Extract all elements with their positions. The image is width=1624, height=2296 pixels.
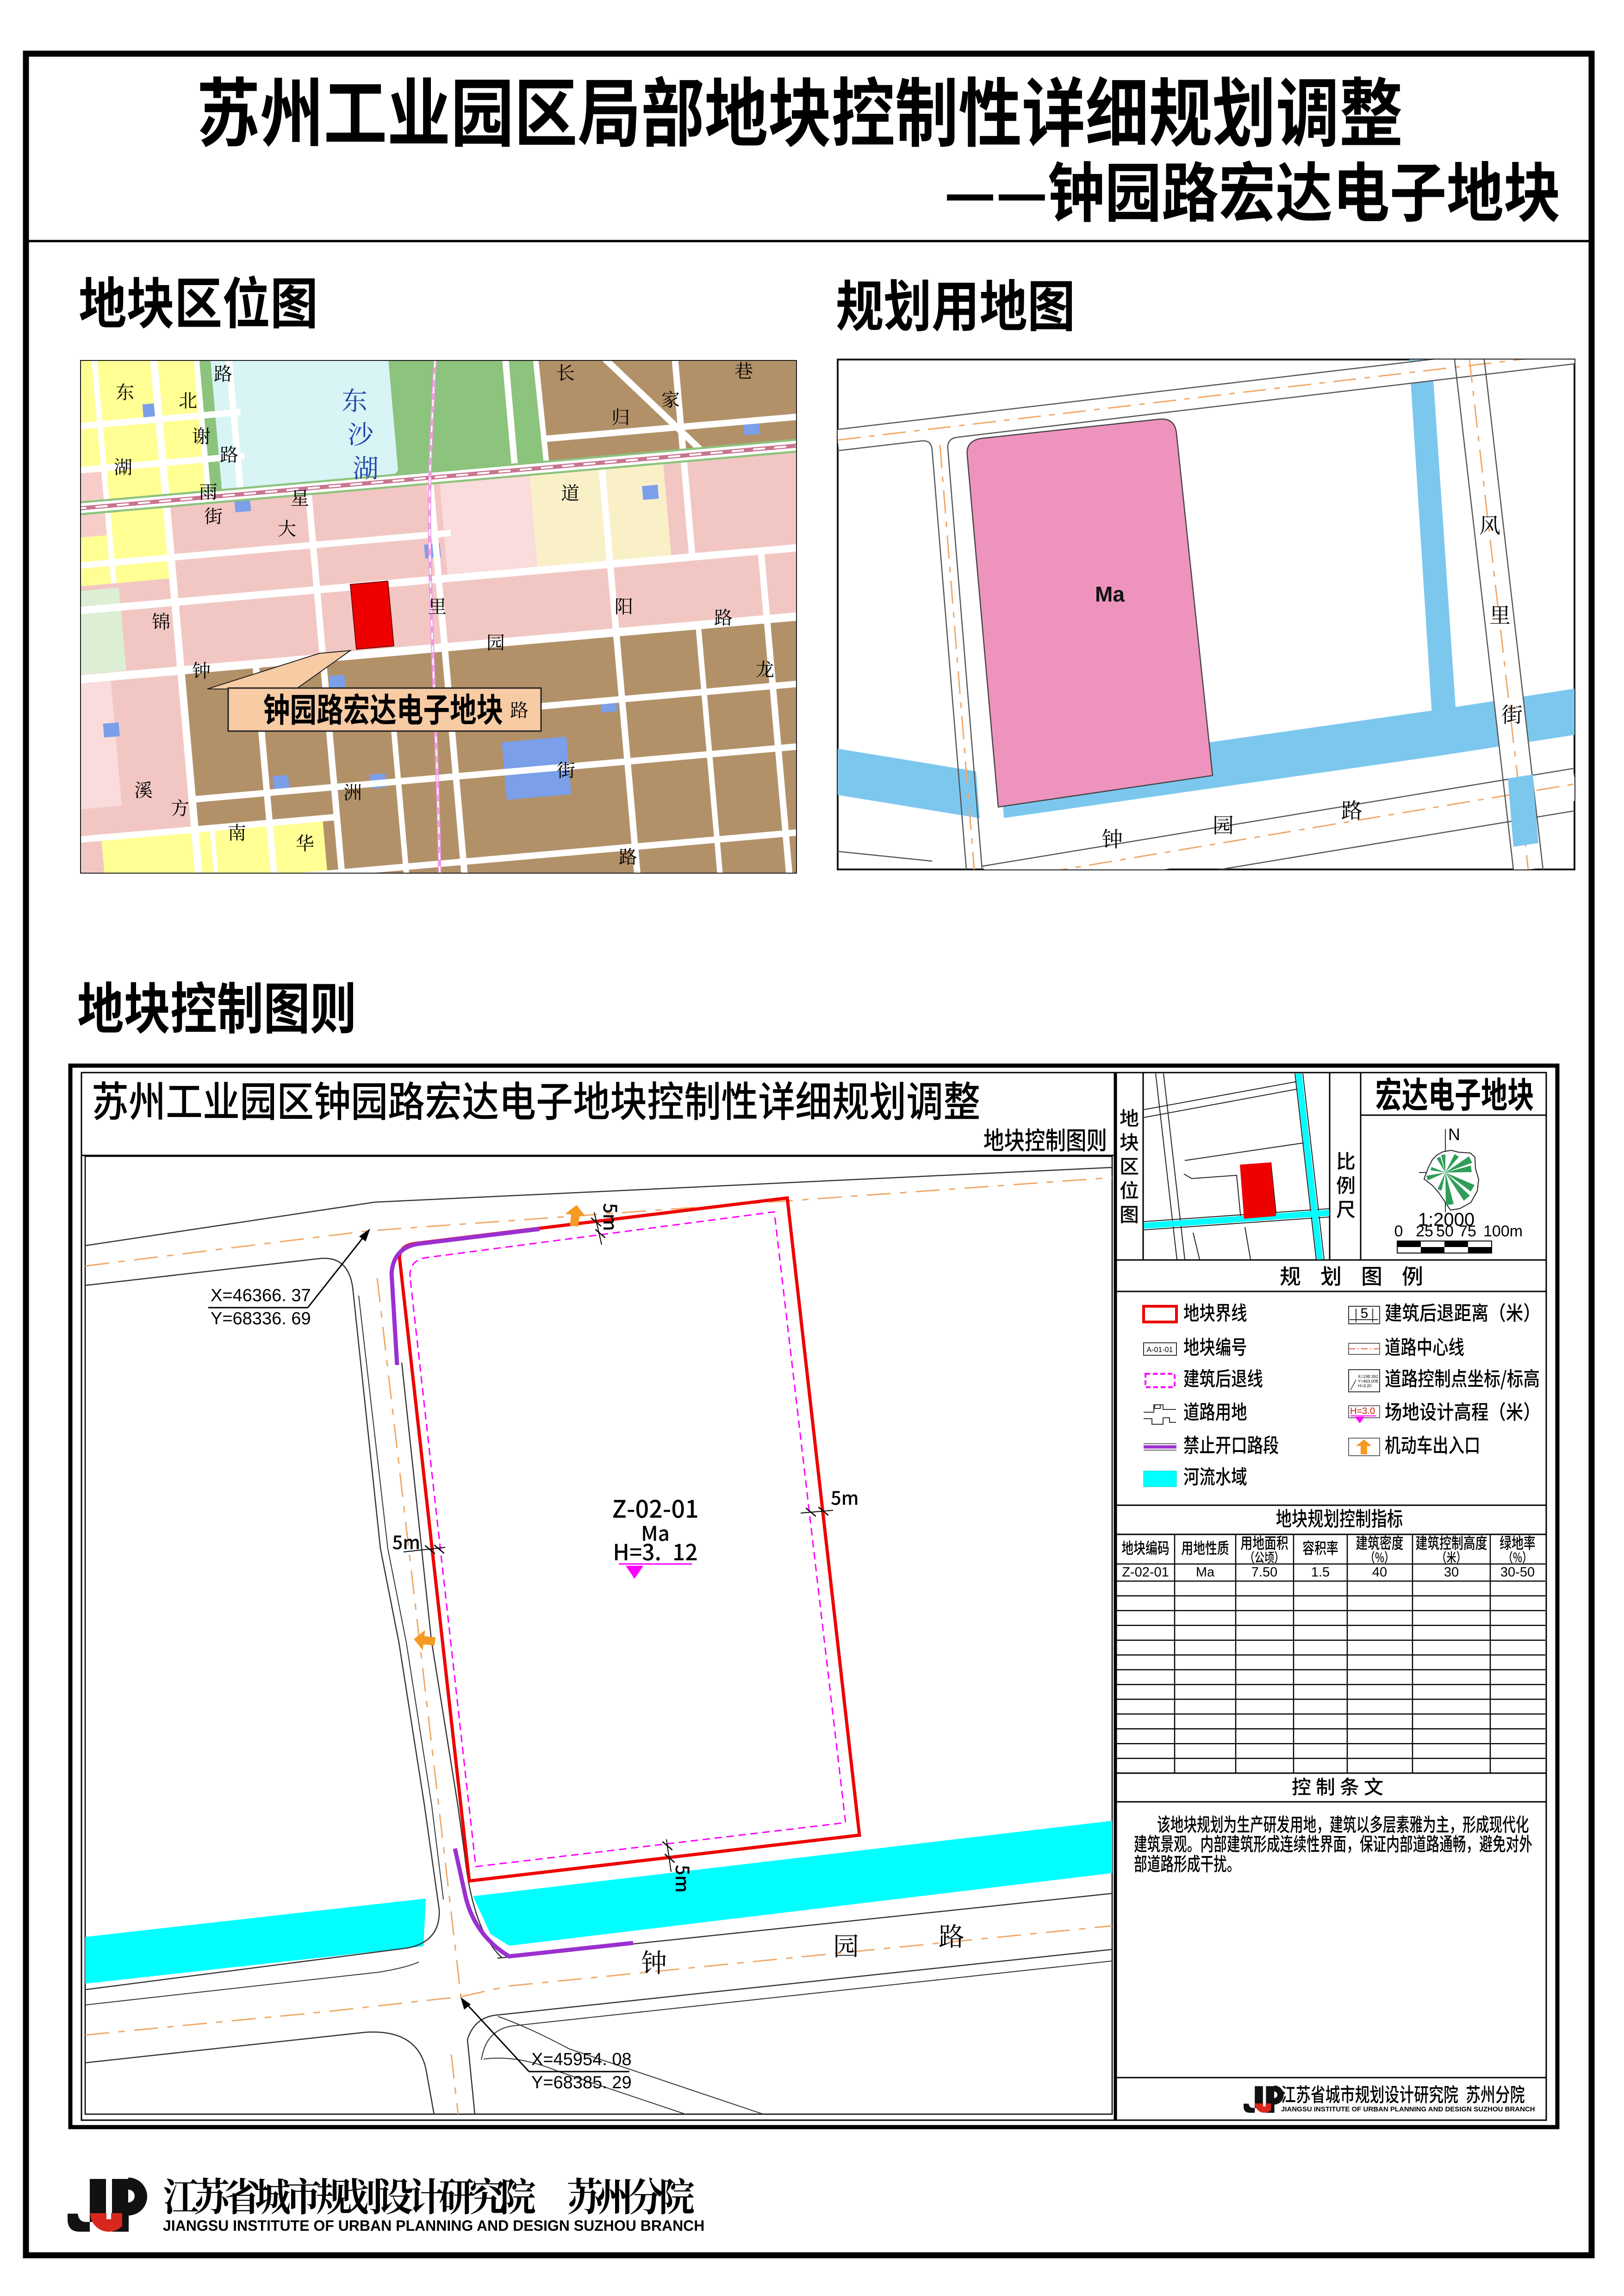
svg-text:25: 25 (1416, 1222, 1433, 1240)
svg-text:X=45954. 08: X=45954. 08 (531, 2050, 632, 2069)
svg-text:7.50: 7.50 (1251, 1565, 1277, 1580)
svg-text:Y=68336. 69: Y=68336. 69 (211, 1309, 311, 1328)
svg-text:JIANGSU INSTITUTE OF URBAN PLA: JIANGSU INSTITUTE OF URBAN PLANNING AND … (1281, 2105, 1535, 2113)
svg-text:30-50: 30-50 (1500, 1565, 1535, 1580)
svg-text:H=3.20: H=3.20 (1358, 1384, 1371, 1388)
svg-text:1.5: 1.5 (1311, 1565, 1330, 1580)
svg-text:Y=463.008: Y=463.008 (1358, 1379, 1378, 1384)
svg-text:30: 30 (1444, 1565, 1459, 1580)
svg-text:50: 50 (1436, 1222, 1454, 1240)
svg-text:Z-02-01: Z-02-01 (1122, 1565, 1169, 1580)
svg-text:JIANGSU INSTITUTE OF URBAN PLA: JIANGSU INSTITUTE OF URBAN PLANNING AND … (163, 2217, 704, 2234)
svg-text:5: 5 (1361, 1306, 1369, 1321)
svg-text:X=46366. 37: X=46366. 37 (211, 1286, 311, 1305)
svg-text:0: 0 (1394, 1222, 1403, 1240)
svg-text:100m: 100m (1483, 1222, 1523, 1240)
svg-text:40: 40 (1372, 1565, 1387, 1580)
svg-text:H=3.0: H=3.0 (1350, 1406, 1375, 1416)
svg-text:N: N (1448, 1125, 1460, 1144)
svg-text:A-01-01: A-01-01 (1147, 1346, 1173, 1354)
svg-text:Y=68385. 29: Y=68385. 29 (531, 2073, 632, 2092)
svg-text:Ma: Ma (1095, 582, 1125, 606)
svg-text:X=198.392: X=198.392 (1358, 1374, 1378, 1379)
svg-text:Ma: Ma (1196, 1565, 1215, 1580)
svg-text:75: 75 (1459, 1222, 1476, 1240)
